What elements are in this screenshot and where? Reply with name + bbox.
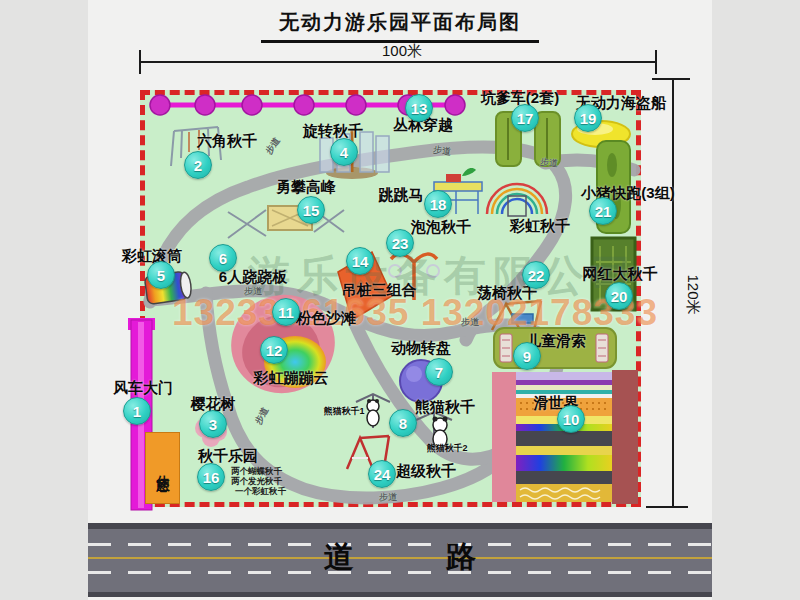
climbing-peak-icon [228,206,344,238]
item-label-14: 吊桩三组合 [342,281,417,300]
screenshot-stage: 无动力游乐园平面布局图 100米 120米 [0,0,800,600]
badge-4: 4 [330,138,358,166]
rainbow-swing-icon [487,184,547,216]
slide-world-icon [492,370,638,504]
badge-16: 16 [197,463,225,491]
badge-22: 22 [522,261,550,289]
footpath-label-5: 步道 [379,491,397,504]
badge-7: 7 [425,358,453,386]
item-label-7: 动物转盘 [391,339,451,358]
extra-label-0: 彩虹秋千 [510,217,570,236]
badge-20: 20 [605,282,633,310]
item-label-4: 旋转秋千 [303,122,363,141]
badge-21: 21 [589,197,617,225]
item-label-8: 熊猫秋千 [415,398,475,417]
badge-18: 18 [424,190,452,218]
badge-6: 6 [209,244,237,272]
badge-24: 24 [368,460,396,488]
item-label-1: 风车大门 [113,379,173,398]
footpath-label-2: 步道 [539,156,558,171]
extra-label-2: 熊猫秋千2 [426,442,467,455]
item-label-2: 六角秋千 [197,132,257,151]
extra-label-1: 熊猫秋千1 [323,405,364,418]
footpath-label-1: 步道 [432,143,452,158]
rest-area-label: 休憩区 [154,465,172,471]
item-label-15: 勇攀高峰 [276,178,336,197]
badge-3: 3 [199,410,227,438]
footpath-label-6: 步道 [461,316,479,329]
item-label-20: 网红大秋千 [583,265,658,284]
footpath-label-3: 步道 [244,285,262,298]
badge-17: 17 [511,104,539,132]
badge-9: 9 [513,342,541,370]
item-label-18: 跳跳马 [379,186,424,205]
badge-12: 12 [260,336,288,364]
road-label: 道 路 [88,537,712,578]
rest-area-block: 休憩区 [145,432,180,504]
badge-19: 19 [574,104,602,132]
badge-2: 2 [184,151,212,179]
badge-15: 15 [297,196,325,224]
swing-park-note-2: 一个彩虹秋千 [235,486,286,498]
badge-14: 14 [346,247,374,275]
item-label-24: 超级秋千 [396,462,456,481]
badge-1: 1 [123,397,151,425]
badge-11: 11 [272,298,300,326]
badge-23: 23 [386,229,414,257]
item-label-12: 彩虹蹦蹦云 [254,369,329,388]
item-label-11: 粉色沙滩 [296,309,356,328]
badge-10: 10 [557,405,585,433]
item-label-23: 泡泡秋千 [411,218,471,237]
badge-5: 5 [147,261,175,289]
badge-8: 8 [389,409,417,437]
badge-13: 13 [405,94,433,122]
road: 道 路 [88,523,712,597]
